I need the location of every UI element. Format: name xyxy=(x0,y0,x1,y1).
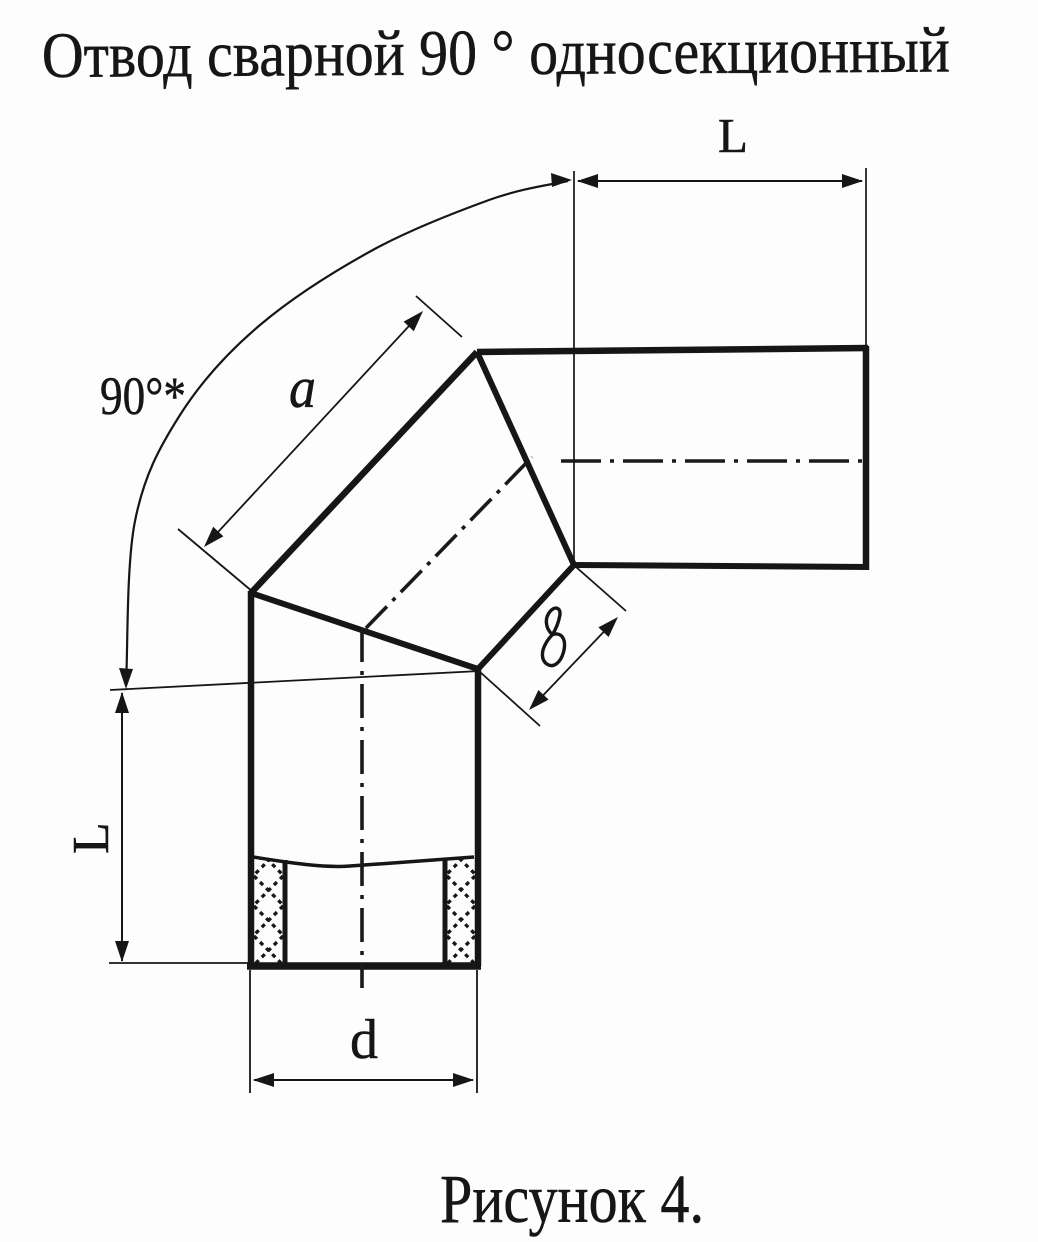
svg-text:Рисунок 4.: Рисунок 4. xyxy=(440,1161,704,1237)
svg-text:a: a xyxy=(289,355,316,420)
svg-text:L: L xyxy=(718,108,748,163)
svg-text:Отвод сварной 90 ° односекцион: Отвод сварной 90 ° односекционный xyxy=(42,14,950,92)
svg-text:d: d xyxy=(350,1009,378,1071)
svg-text:90°*: 90°* xyxy=(100,366,186,426)
svg-text:L: L xyxy=(63,822,120,854)
